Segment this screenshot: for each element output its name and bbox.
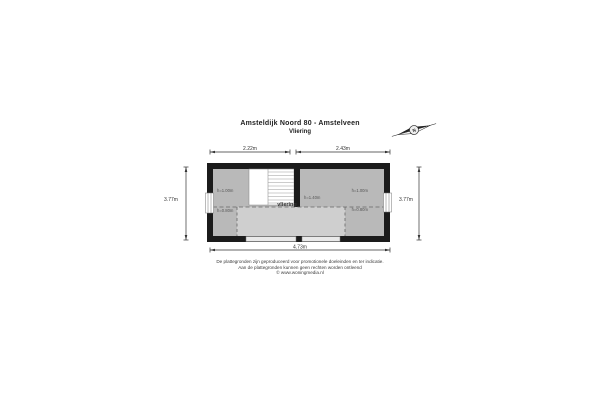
interior-wall [294, 163, 300, 207]
height-label-center: h=1.40m [304, 195, 321, 200]
height-label-top-right: h=1.00m [352, 188, 369, 193]
dimension-right-value: 3.77m [399, 197, 413, 203]
dimension-left [184, 167, 189, 240]
window-right [384, 193, 392, 212]
footer-disclaimer: De plattegronden zijn geproduceerd voor … [0, 259, 600, 276]
dimension-top-left-value: 2.22m [243, 146, 257, 152]
dimension-left-value: 3.77m [164, 197, 178, 203]
floor-area-light [237, 207, 345, 236]
dimension-right [417, 167, 422, 240]
bottom-opening-left [246, 237, 296, 242]
dimension-top-right-value: 2.43m [336, 146, 350, 152]
floorplan-drawing: h=1.00m h=1.00m h=0.80m h=0.80m h=1.40m … [0, 0, 600, 400]
room-label: vliering [277, 202, 297, 208]
height-label-bottom-right: h=0.80m [352, 207, 369, 212]
compass-icon: N [391, 119, 438, 140]
window-left [206, 193, 214, 213]
height-label-top-left: h=1.00m [217, 188, 234, 193]
bottom-opening-right [302, 237, 340, 242]
dimension-bottom-value: 4.73m [293, 245, 307, 251]
staircase [249, 169, 294, 205]
footer-line3: © www.woningmedia.nl [0, 270, 600, 276]
height-label-bottom-left: h=0.80m [217, 208, 234, 213]
floorplan-page: Amsteldijk Noord 80 - Amstelveen Vlierin… [0, 0, 600, 400]
